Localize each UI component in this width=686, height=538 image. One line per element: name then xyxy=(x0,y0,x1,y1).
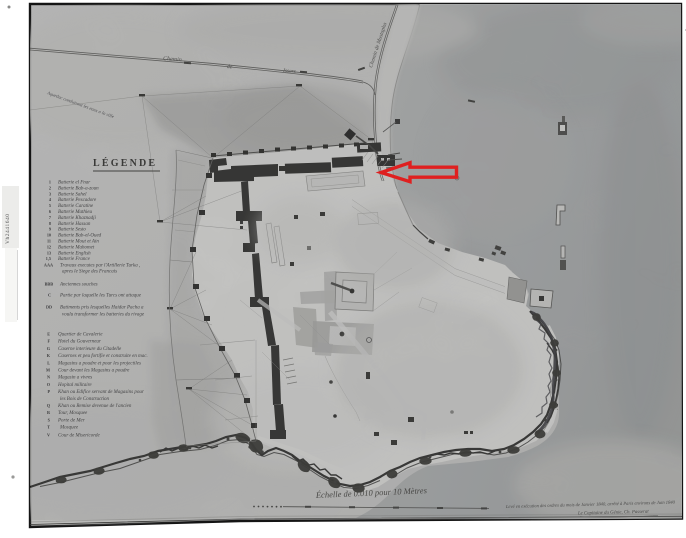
svg-text:Vh2441640: Vh2441640 xyxy=(5,214,11,244)
